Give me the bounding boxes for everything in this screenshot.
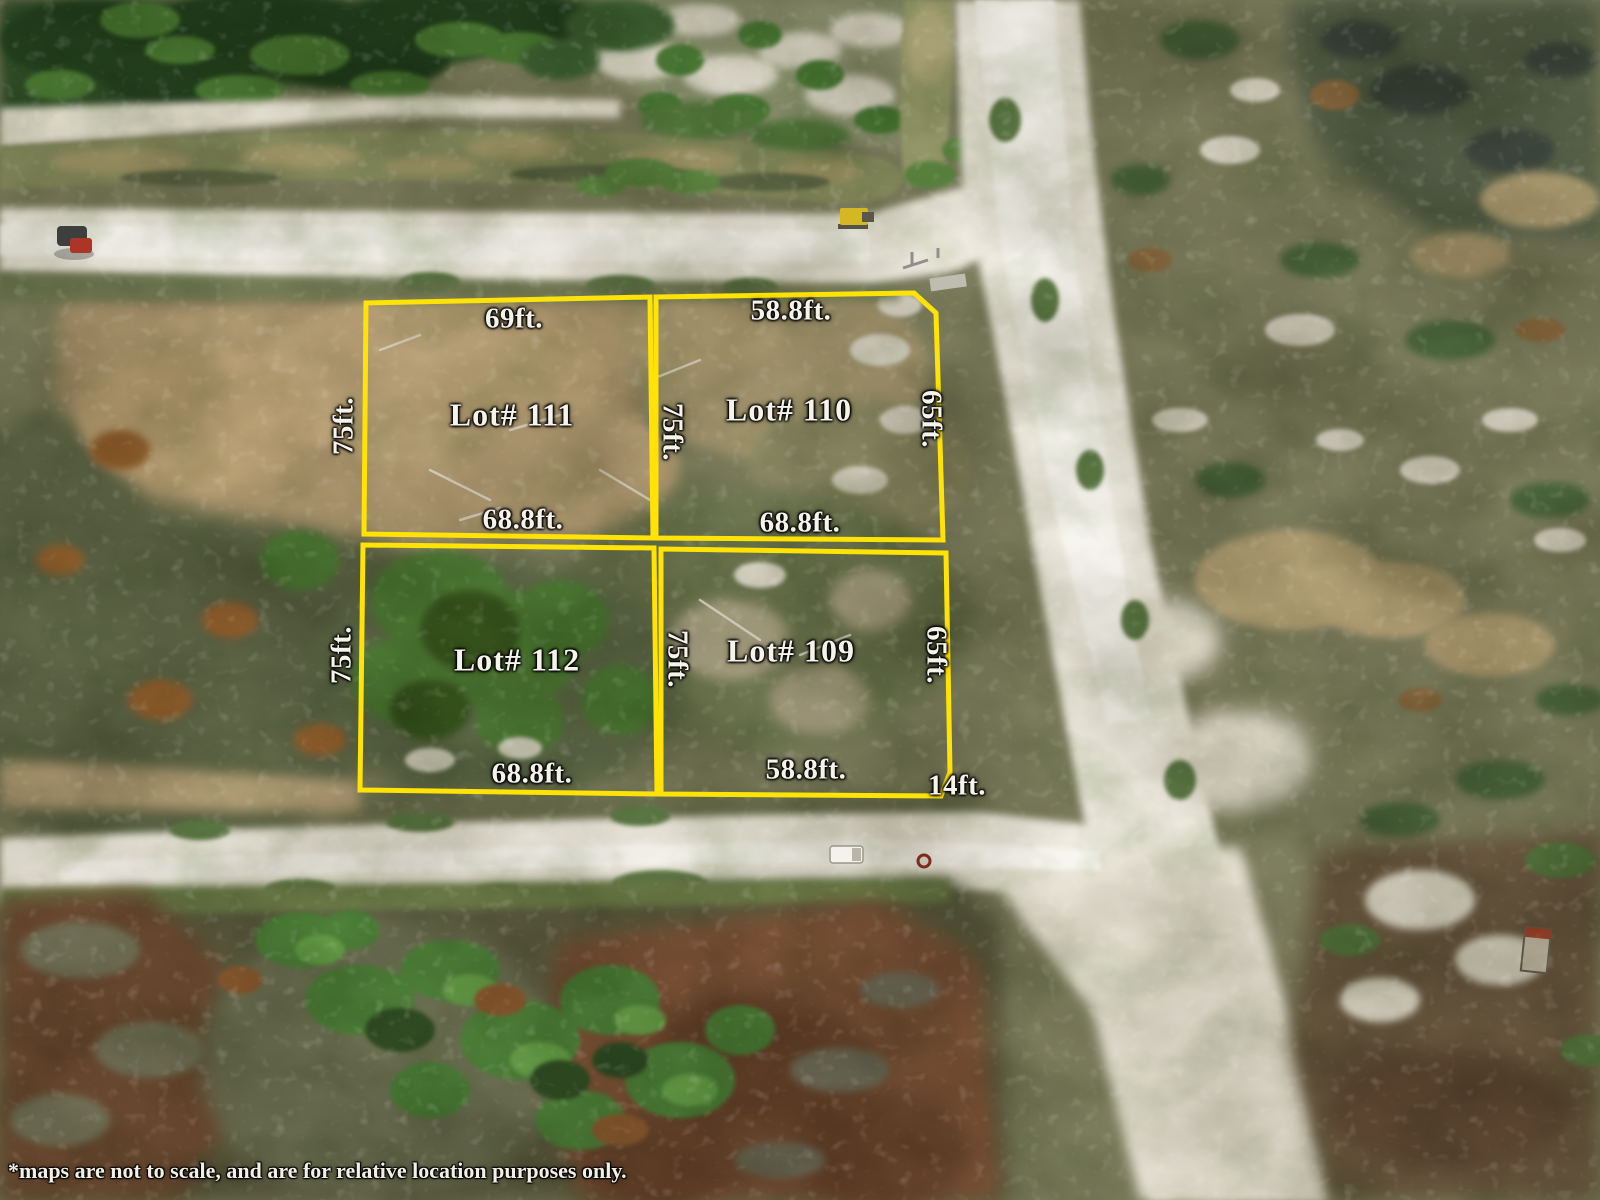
dim-label-lot110-top: 58.8ft.	[751, 295, 832, 328]
dim-label-lot112-bottom: 68.8ft.	[492, 758, 573, 791]
dim-label-lot112-left: 75ft.	[326, 626, 359, 684]
dim-label-mid-upper: 75ft.	[656, 403, 689, 461]
lot-label-109: Lot# 109	[727, 633, 855, 670]
map-disclaimer: *maps are not to scale, and are for rela…	[8, 1158, 627, 1184]
lot-boundaries	[0, 0, 1600, 1200]
dim-label-lot109-right: 65ft.	[920, 626, 953, 684]
dim-label-lot111-bottom: 68.8ft.	[483, 504, 564, 537]
lot-location-map: 69ft. 58.8ft. 75ft. 75ft. 65ft. Lot# 111…	[0, 0, 1600, 1200]
dim-label-mid-lower: 75ft.	[661, 630, 694, 688]
lot-label-111: Lot# 111	[450, 397, 574, 434]
lot-label-110: Lot# 110	[726, 392, 852, 429]
dim-label-lot110-right: 65ft.	[915, 390, 948, 448]
dim-label-lot110-bottom: 68.8ft.	[760, 507, 841, 540]
dim-label-corner: 14ft.	[928, 770, 986, 803]
dim-label-lot109-bottom: 58.8ft.	[766, 754, 847, 787]
lot-label-112: Lot# 112	[454, 642, 580, 679]
dim-label-lot111-left: 75ft.	[328, 397, 361, 455]
dim-label-lot111-top: 69ft.	[485, 303, 543, 336]
